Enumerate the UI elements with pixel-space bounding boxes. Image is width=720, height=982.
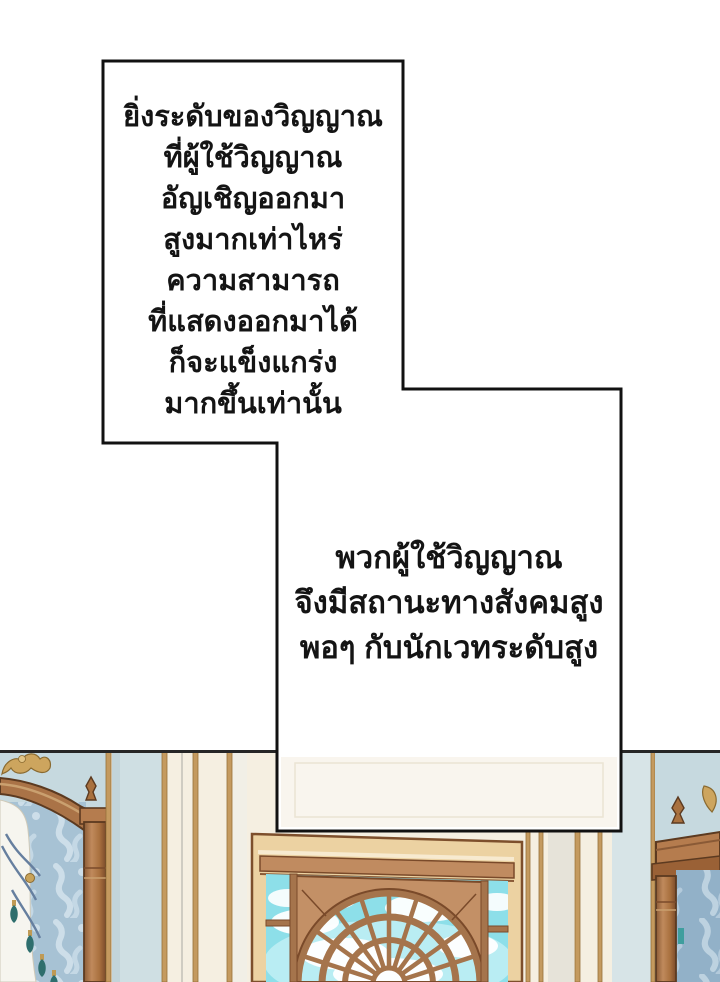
narration-line: พอๆ กับนักเวทระดับสูง	[277, 625, 621, 670]
narration-line: ก็จะแข็งแกร่ง	[103, 343, 403, 384]
narration-line: ความสามารถ	[103, 261, 403, 302]
narration-line: จึงมีสถานะทางสังคมสูง	[277, 580, 621, 625]
narration-line: พวกผู้ใช้วิญญาณ	[277, 535, 621, 580]
narration-line: ที่ผู้ใช้วิญญาณ	[103, 138, 403, 179]
narration-line: สูงมากเท่าไหร่	[103, 220, 403, 261]
comic-page: ยิ่งระดับของวิญญาณ ที่ผู้ใช้วิญญาณ อัญเช…	[0, 0, 720, 982]
narration-line: ที่แสดงออกมาได้	[103, 302, 403, 343]
narration-box-1: ยิ่งระดับของวิญญาณ ที่ผู้ใช้วิญญาณ อัญเช…	[103, 61, 403, 425]
narration-line: อัญเชิญออกมา	[103, 179, 403, 220]
narration-box-2: พวกผู้ใช้วิญญาณ จึงมีสถานะทางสังคมสูง พอ…	[277, 389, 621, 670]
narration-line: ยิ่งระดับของวิญญาณ	[103, 97, 403, 138]
